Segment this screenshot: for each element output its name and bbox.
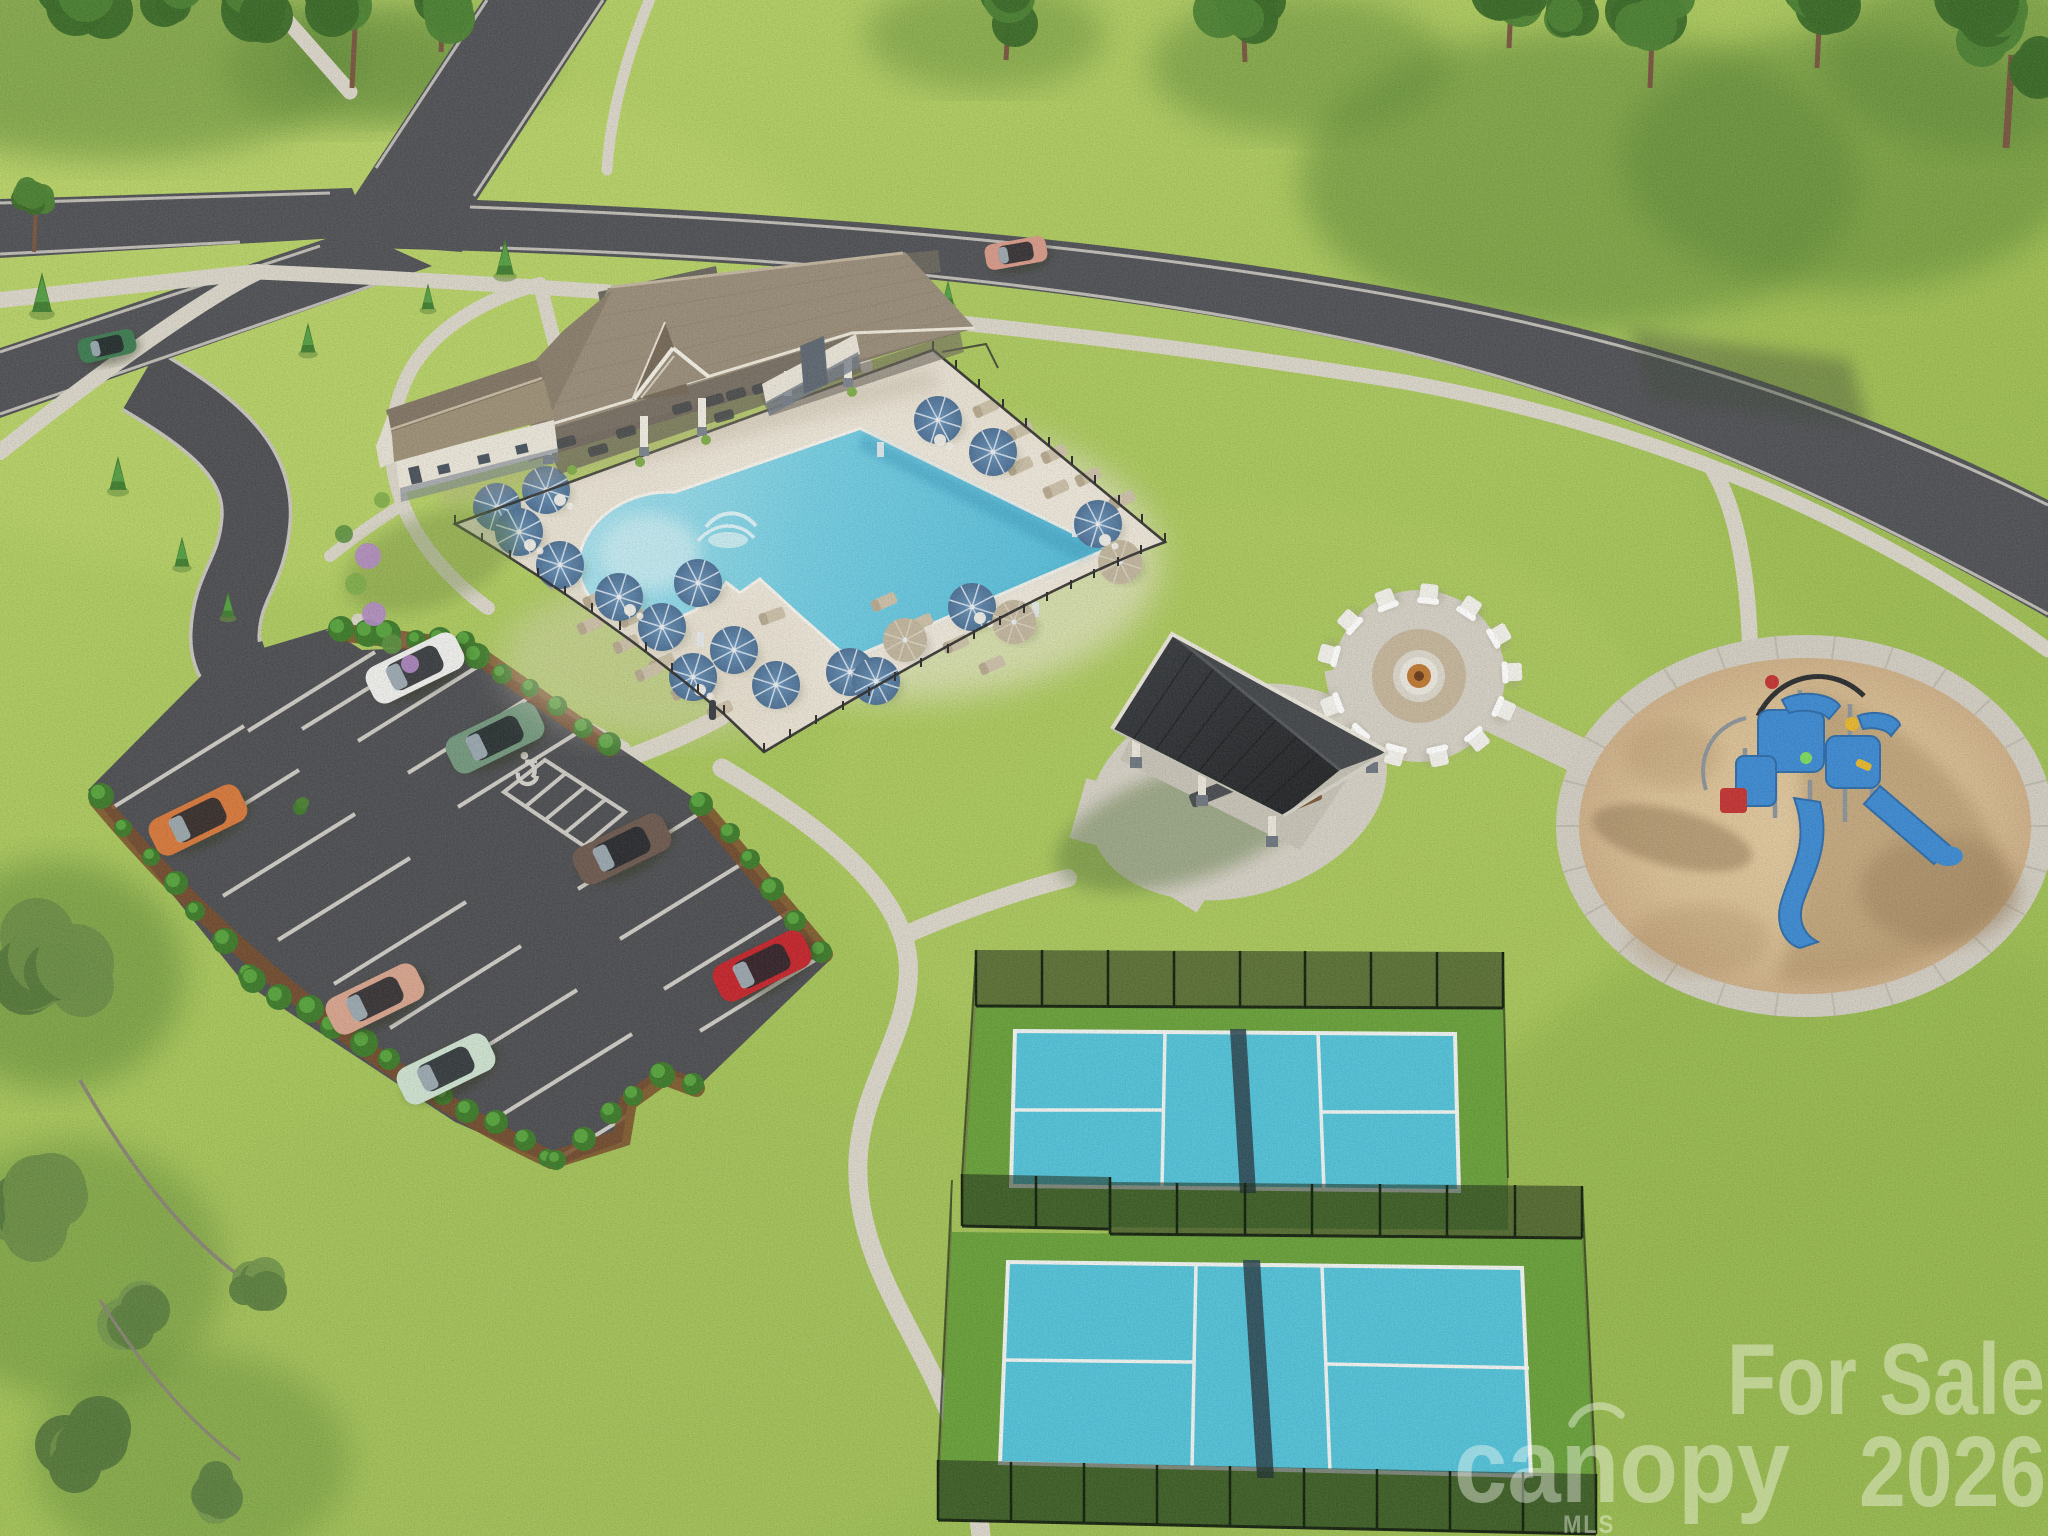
svg-text:canopy: canopy <box>1454 1407 1790 1525</box>
svg-text:2026: 2026 <box>1859 1416 2046 1528</box>
svg-text:MLS: MLS <box>1563 1511 1615 1536</box>
